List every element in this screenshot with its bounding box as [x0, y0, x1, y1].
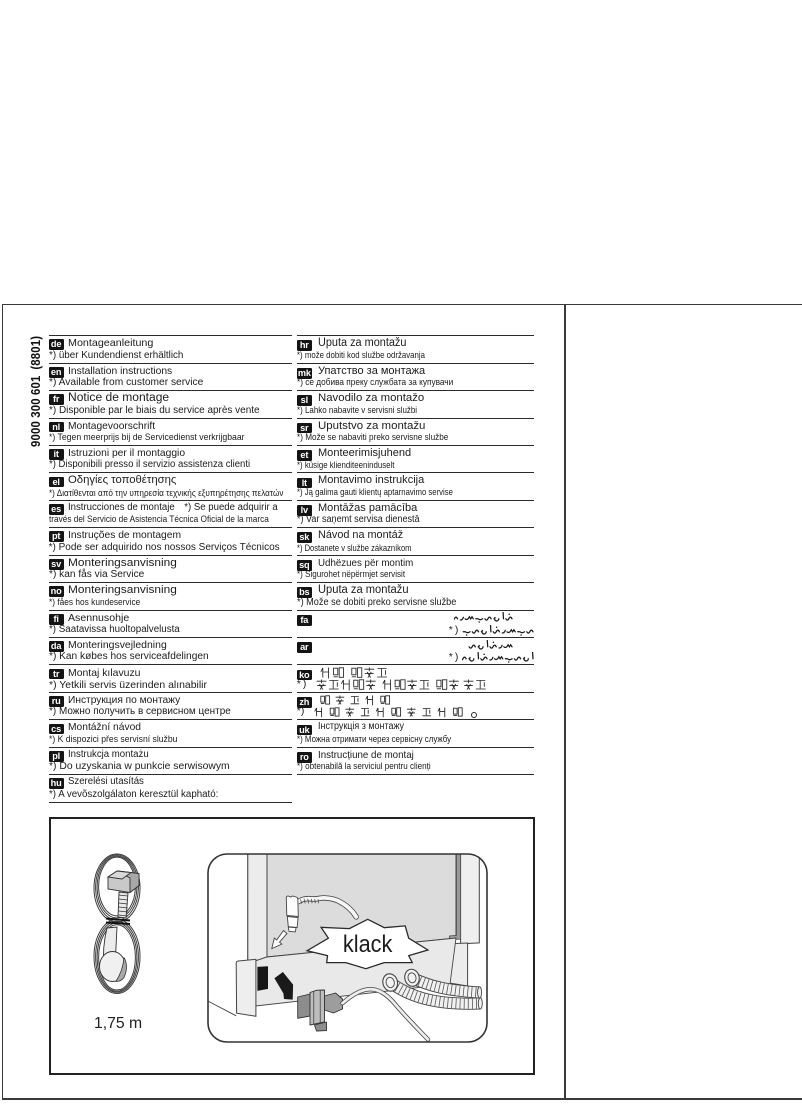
svg-text:klack: klack — [342, 931, 392, 958]
